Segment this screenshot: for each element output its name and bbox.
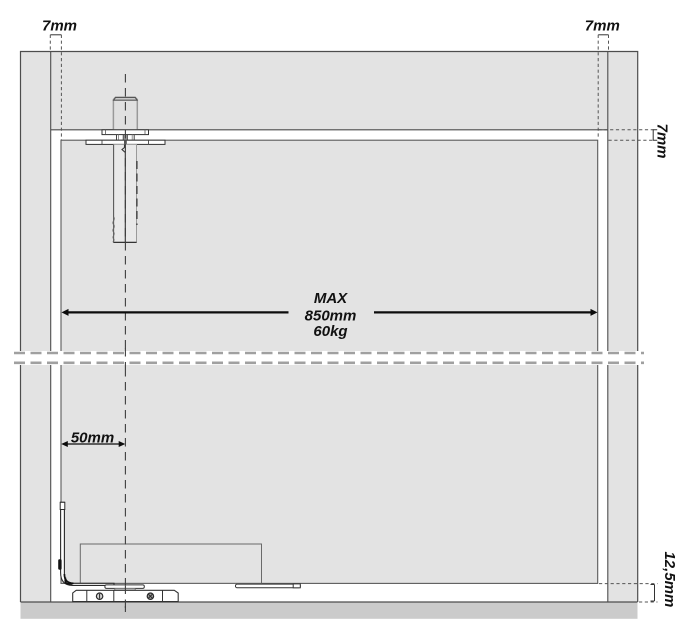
svg-text:MAX: MAX <box>314 290 348 307</box>
svg-text:60kg: 60kg <box>313 323 347 340</box>
svg-text:50mm: 50mm <box>71 429 114 446</box>
svg-text:7mm: 7mm <box>654 123 671 158</box>
svg-text:7mm: 7mm <box>42 18 77 35</box>
svg-text:12,5mm: 12,5mm <box>661 551 678 607</box>
svg-text:850mm: 850mm <box>305 308 357 325</box>
svg-text:7mm: 7mm <box>585 18 620 35</box>
